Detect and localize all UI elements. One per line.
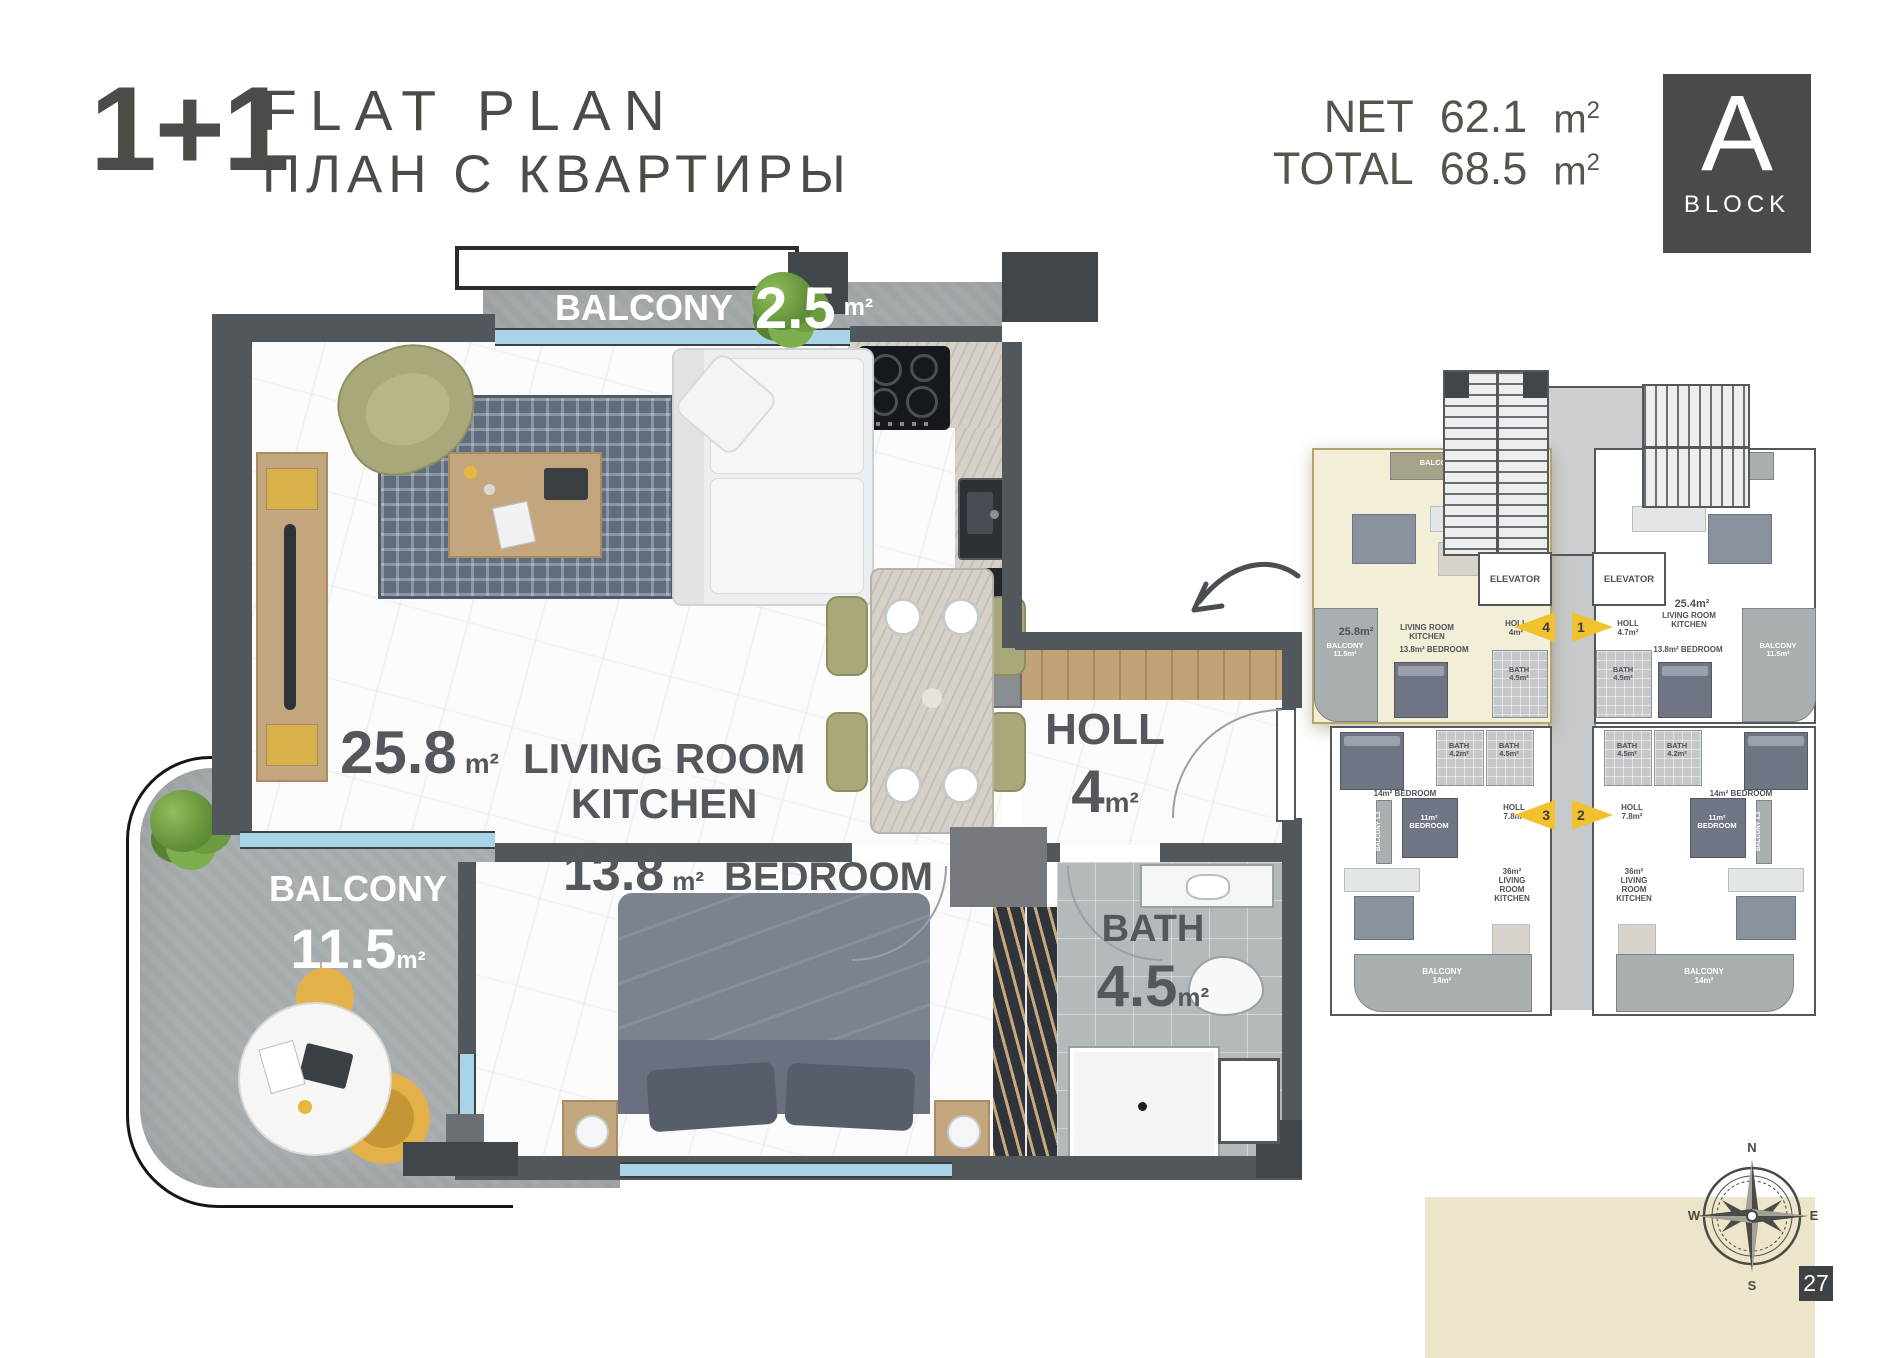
- elevator-box: ELEVATOR: [1592, 552, 1666, 606]
- mini-bed: [1394, 662, 1448, 718]
- wall-segment: [1160, 843, 1302, 862]
- area-summary: NET 62.1 m2 TOTAL 68.5 m2: [1150, 94, 1600, 192]
- mini-rug: [1352, 514, 1416, 564]
- elevator-box: ELEVATOR: [1478, 552, 1552, 606]
- wall-segment: [1282, 648, 1302, 708]
- pillow: [784, 1063, 915, 1132]
- staircase: [1443, 370, 1549, 556]
- mini-label: 11m² BEDROOM: [1690, 814, 1744, 831]
- bath-label: BATH 4.5m²: [1078, 908, 1228, 1020]
- mini-bath: [1596, 650, 1652, 718]
- mini-label: 36m² LIVING ROOM KITCHEN: [1604, 868, 1664, 904]
- page-number: 27: [1803, 1270, 1829, 1297]
- entrance-door: [1276, 708, 1296, 822]
- mini-label: BALCONY 11.5m²: [1314, 642, 1376, 659]
- block-badge: A BLOCK: [1663, 74, 1811, 253]
- wall-junction-block: [950, 827, 1047, 907]
- dining-chair: [826, 596, 868, 676]
- wall-niche: [1218, 1058, 1280, 1144]
- page-title: FLAT PLAN: [262, 78, 678, 144]
- mini-label: LIVING ROOM KITCHEN: [1384, 624, 1470, 642]
- window: [458, 1054, 476, 1114]
- block-word: BLOCK: [1684, 191, 1790, 219]
- mini-label: 14m² BEDROOM: [1686, 790, 1796, 799]
- mini-label: 14m² BEDROOM: [1350, 790, 1460, 799]
- mini-label: BALCONY 11.5m²: [1744, 642, 1812, 659]
- mini-bath: [1492, 650, 1548, 718]
- mini-label: BALCONY 14m²: [1616, 968, 1792, 986]
- overview-unit: 14m² BEDROOM BATH 4.2m² BATH 4.5m² BALCO…: [1330, 726, 1552, 1016]
- mini-label: 11m² BEDROOM: [1402, 814, 1456, 831]
- wall-segment: [212, 314, 495, 342]
- unit-type-title: 1+1: [90, 60, 288, 198]
- nightstand: [562, 1100, 618, 1160]
- wall-segment: [403, 1142, 518, 1176]
- mini-label: BALCONY 1.2: [1376, 802, 1390, 860]
- mini-bed: [1340, 732, 1404, 790]
- dining-table: [870, 568, 994, 834]
- mini-label: 25.8m²: [1328, 626, 1384, 638]
- nightstand: [934, 1100, 990, 1160]
- mini-sofa: [1344, 868, 1420, 892]
- mini-label: BATH 4.2m²: [1436, 742, 1482, 759]
- window: [620, 1162, 952, 1178]
- mini-sofa: [1632, 506, 1706, 532]
- mini-label: BALCONY 14m²: [1354, 968, 1530, 986]
- wall-segment: [1015, 632, 1302, 650]
- tv-console: [256, 452, 328, 782]
- mini-sofa: [1728, 868, 1804, 892]
- coffee-table: [448, 452, 602, 558]
- compass-w: W: [1688, 1208, 1701, 1223]
- plant-icon: [150, 790, 216, 852]
- shower-tray: [1070, 1048, 1218, 1168]
- hall-label: HOLL 4m²: [1030, 705, 1180, 826]
- net-label: NET: [1324, 94, 1414, 140]
- mini-label: BATH 4.5m²: [1596, 666, 1650, 683]
- net-value: 62.1: [1440, 94, 1528, 140]
- page-number-badge: 27: [1799, 1266, 1833, 1301]
- balcony-table: [238, 1002, 392, 1156]
- dining-chair: [826, 712, 868, 792]
- mini-label: LIVING ROOM KITCHEN: [1646, 612, 1732, 630]
- page-title-russian: ПЛАН С КВАРТИРЫ: [262, 144, 852, 205]
- window: [240, 831, 495, 849]
- mini-label: HOLL 7.8m²: [1602, 804, 1662, 822]
- mini-label: BALCONY 1.2: [1756, 802, 1770, 860]
- pillow: [646, 1062, 778, 1133]
- mini-label: BATH 4.5m²: [1486, 742, 1532, 759]
- elevator-label: ELEVATOR: [1490, 574, 1540, 585]
- bath-vanity: [1140, 864, 1274, 908]
- sofa: [672, 348, 874, 606]
- mini-label: BATH 4.2m²: [1654, 742, 1700, 759]
- mini-label: BATH 4.5m²: [1604, 742, 1650, 759]
- mini-rug: [1354, 896, 1414, 940]
- kitchen-sink-icon: [958, 478, 1006, 560]
- wall-segment: [212, 314, 252, 835]
- wall-segment: [1002, 342, 1022, 648]
- top-balcony-label: BALCONY 2.5 m²: [555, 282, 873, 334]
- mini-rug: [1708, 514, 1772, 564]
- net-area-row: NET 62.1 m2: [1150, 94, 1600, 140]
- compass-e: E: [1810, 1208, 1819, 1223]
- net-unit: m2: [1553, 99, 1600, 140]
- mini-balcony: [1742, 608, 1816, 722]
- mini-label: 25.4m²: [1664, 598, 1720, 610]
- total-label: TOTAL: [1273, 146, 1414, 192]
- elevator-label: ELEVATOR: [1604, 574, 1654, 585]
- living-room-label: 25.8 m² LIVING ROOMKITCHEN: [340, 718, 805, 827]
- bedroom-label: 13.8 m² BEDROOM: [563, 843, 933, 903]
- compass-n: N: [1747, 1140, 1756, 1155]
- overview-unit: 14m² BEDROOM BATH 4.5m² BATH 4.2m² BALCO…: [1592, 726, 1816, 1016]
- total-unit: m2: [1553, 151, 1600, 192]
- mini-label: BATH 4.5m²: [1492, 666, 1546, 683]
- side-balcony-label: BALCONY 11.5m²: [248, 868, 468, 981]
- staircase: [1642, 384, 1750, 508]
- mini-bed: [1744, 732, 1808, 790]
- compass-s: S: [1748, 1278, 1757, 1293]
- wardrobe: [993, 907, 1057, 1158]
- flat-plan-page: 1+1 FLAT PLAN ПЛАН С КВАРТИРЫ NET 62.1 m…: [0, 0, 1890, 1358]
- mini-rug: [1736, 896, 1796, 940]
- hall-wood-strip: [1015, 648, 1300, 700]
- mini-label: 36m² LIVING ROOM KITCHEN: [1482, 868, 1542, 904]
- block-letter: A: [1701, 76, 1773, 189]
- mini-bed: [1658, 662, 1712, 718]
- mini-label: 13.8m² BEDROOM: [1630, 646, 1746, 655]
- wall-segment: [1002, 252, 1098, 322]
- mini-label: 13.8m² BEDROOM: [1376, 646, 1492, 655]
- pointer-arrow-icon: [1194, 564, 1298, 610]
- total-area-row: TOTAL 68.5 m2: [1150, 146, 1600, 192]
- total-value: 68.5: [1440, 146, 1528, 192]
